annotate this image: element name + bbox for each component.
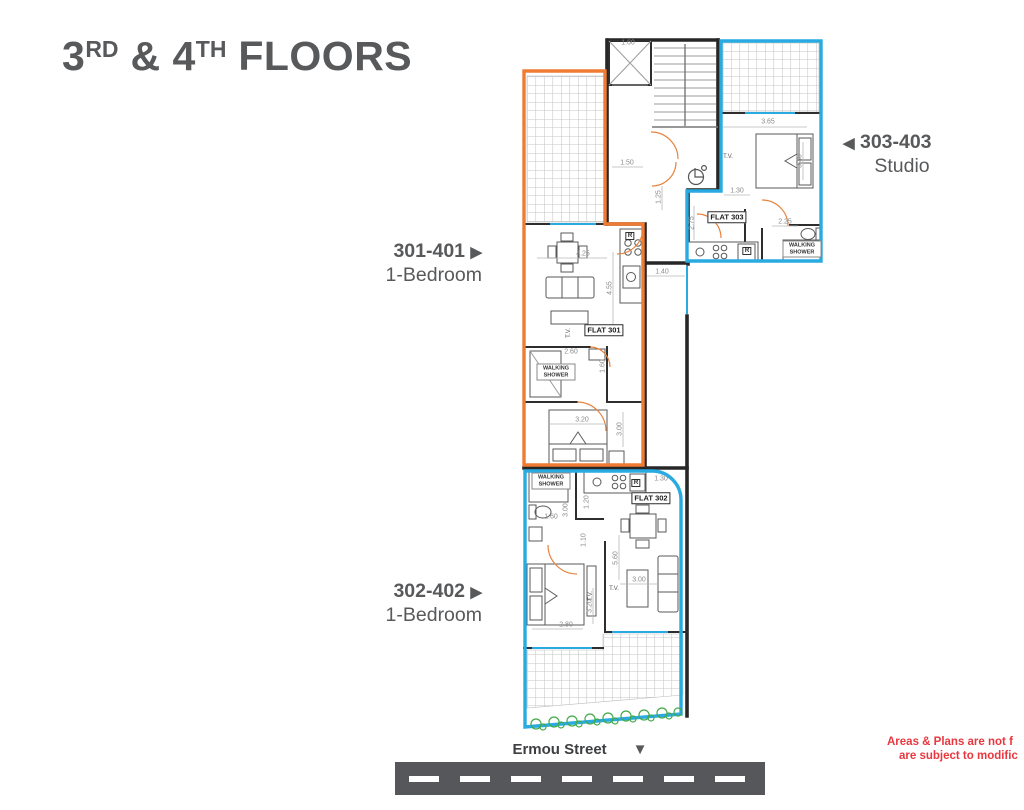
unit-id: 302-402 ▶ xyxy=(340,580,482,604)
shower-label: WALKING SHOWER xyxy=(532,473,571,490)
dim-label: 2.25 xyxy=(778,219,792,226)
road-center-dashes xyxy=(409,776,757,782)
unit-type: Studio xyxy=(843,155,961,177)
dim-label: 3.20 xyxy=(587,599,594,613)
dim-label: 2.60 xyxy=(564,349,578,356)
unit-type: 1-Bedroom xyxy=(340,264,482,286)
wheelchair-icon xyxy=(689,166,707,185)
dim-label: 1.60 xyxy=(544,514,558,521)
appl-label: R xyxy=(742,247,751,255)
disclaimer-text: Areas & Plans are not f are subject to m… xyxy=(887,736,1024,763)
arrow-right-icon: ▶ xyxy=(470,584,482,601)
ermou-street-road xyxy=(395,762,765,795)
unit-label-303-403: ◀ 303-403 Studio xyxy=(843,131,961,177)
dim-label: 1.25 xyxy=(656,190,663,204)
dim-label: 3.00 xyxy=(632,577,646,584)
shower-label: WALKING SHOWER xyxy=(783,241,822,258)
arrow-right-icon: ▶ xyxy=(470,244,482,261)
unit-label-301-401: 301-401 ▶ 1-Bedroom xyxy=(340,240,482,286)
floor-plan-drawing xyxy=(0,0,1024,810)
arrow-down-icon: ▼ xyxy=(633,741,648,758)
street-label: Ermou Street ▼ xyxy=(455,741,705,758)
dim-label: 1.60 xyxy=(621,40,635,47)
appl-label: R xyxy=(631,479,640,487)
dim-label: 3.00 xyxy=(563,503,570,517)
disclaimer-line-1: Areas & Plans are not f xyxy=(887,736,1024,750)
dim-label: 1.20 xyxy=(584,495,591,509)
street-name: Ermou Street xyxy=(512,741,606,758)
staircase xyxy=(652,44,718,127)
dim-label: 3.00 xyxy=(617,422,624,436)
shower-label: WALKING SHOWER xyxy=(537,364,576,381)
unit-type: 1-Bedroom xyxy=(340,604,482,626)
appl-label: R xyxy=(625,232,634,240)
unit-number: 301-401 xyxy=(393,240,465,262)
dim-label: 5.60 xyxy=(613,551,620,565)
tv-label: T.V. xyxy=(566,328,572,338)
dim-label: 4.25 xyxy=(576,251,590,258)
flat-label: FLAT 301 xyxy=(584,324,623,336)
floor-plan-page: 3RD & 4TH FLOORS xyxy=(0,0,1024,810)
unit-number: 303-403 xyxy=(860,131,932,153)
unit-id: ◀ 303-403 xyxy=(843,131,961,155)
disclaimer-line-2: are subject to modific xyxy=(899,750,1024,764)
unit-label-302-402: 302-402 ▶ 1-Bedroom xyxy=(340,580,482,626)
flat-label: FLAT 303 xyxy=(707,211,746,223)
dim-label: 1.60 xyxy=(600,359,607,373)
unit-number: 302-402 xyxy=(393,580,465,602)
dim-label: 3.40 xyxy=(797,154,804,168)
tv-label: T.V. xyxy=(723,154,733,160)
dim-label: 2.80 xyxy=(559,622,573,629)
flat-label: FLAT 302 xyxy=(631,492,670,504)
dim-label: 1.30 xyxy=(730,188,744,195)
dim-label: 1.40 xyxy=(655,269,669,276)
dim-label: 3.20 xyxy=(575,417,589,424)
arrow-left-icon: ◀ xyxy=(843,135,855,152)
dim-label: 2.75 xyxy=(689,216,696,230)
dim-label: 1.10 xyxy=(581,533,588,547)
dim-label: 1.30 xyxy=(654,476,668,483)
dim-label: 4.55 xyxy=(607,281,614,295)
dim-label: 3.65 xyxy=(761,119,775,126)
tv-label: T.V. xyxy=(609,586,619,592)
elevator xyxy=(609,41,651,85)
unit-id: 301-401 ▶ xyxy=(340,240,482,264)
dim-label: 1.50 xyxy=(620,160,634,167)
